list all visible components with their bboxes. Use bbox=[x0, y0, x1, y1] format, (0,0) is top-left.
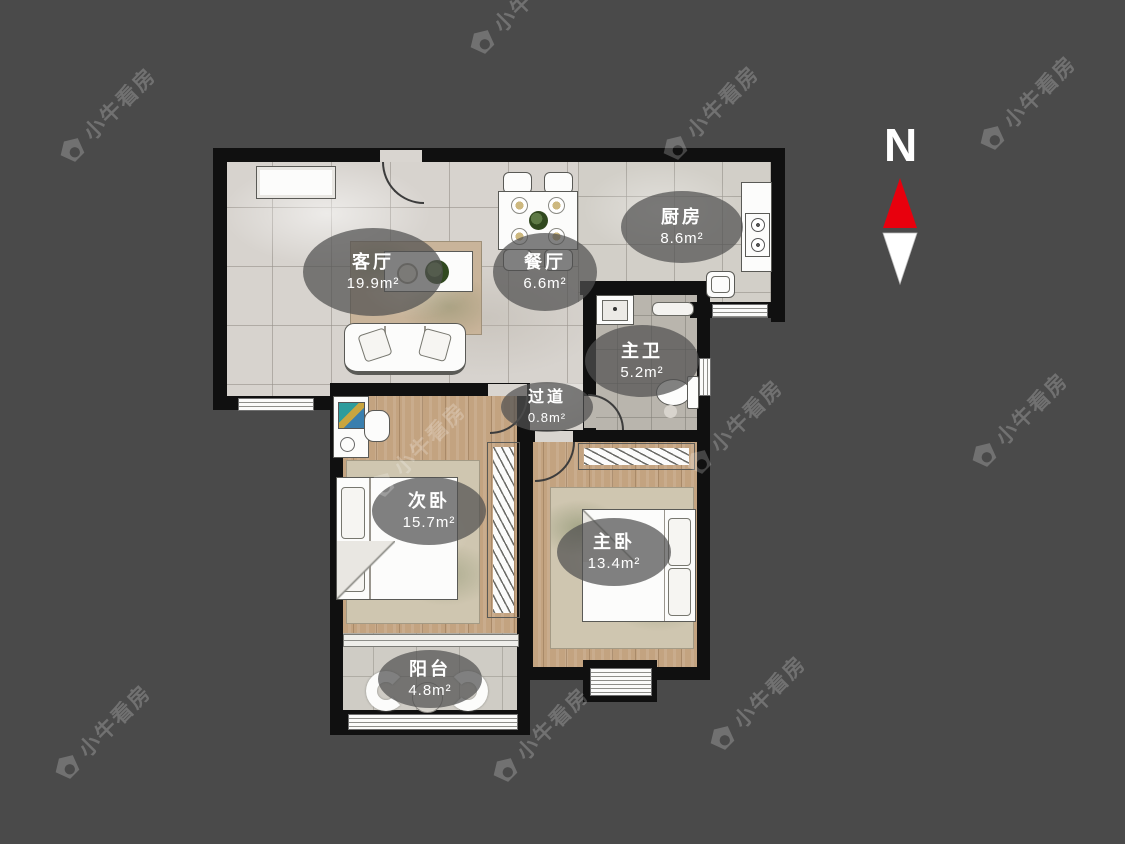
bathroom-window bbox=[699, 358, 711, 396]
label-hallway: 过道 0.8m² bbox=[501, 382, 593, 432]
living-window bbox=[238, 398, 314, 411]
entrance-opening bbox=[380, 150, 422, 162]
bedroom1-door-opening bbox=[535, 431, 573, 442]
bathroom-vanity bbox=[596, 295, 634, 325]
room-area: 0.8m² bbox=[528, 409, 566, 427]
room-area: 4.8m² bbox=[408, 681, 451, 701]
stove bbox=[745, 213, 770, 257]
wall-top bbox=[213, 148, 785, 162]
label-bathroom: 主卫 5.2m² bbox=[585, 325, 699, 397]
bull-logo-icon bbox=[704, 720, 741, 757]
room-name: 过道 bbox=[528, 387, 566, 409]
room-area: 6.6m² bbox=[523, 274, 566, 294]
room-area: 15.7m² bbox=[403, 513, 456, 533]
watermark-text: 小牛看房 bbox=[486, 0, 572, 38]
room-name: 阳台 bbox=[409, 657, 451, 681]
vanity-drain bbox=[613, 307, 617, 311]
sofa-pillow bbox=[418, 328, 452, 362]
watermark: 小牛看房 bbox=[973, 48, 1083, 158]
watermark: 小牛看房 bbox=[53, 60, 163, 170]
watermark-text: 小牛看房 bbox=[703, 372, 789, 458]
label-bedroom2: 次卧 15.7m² bbox=[372, 477, 486, 545]
watermark-text: 小牛看房 bbox=[996, 48, 1082, 134]
label-bedroom1: 主卧 13.4m² bbox=[557, 518, 671, 586]
balcony-window bbox=[348, 714, 518, 730]
bed-pillow bbox=[341, 487, 365, 539]
desk-lamp bbox=[340, 437, 355, 452]
watermark-text: 小牛看房 bbox=[679, 58, 765, 144]
shower-fixture bbox=[652, 302, 694, 316]
room-area: 5.2m² bbox=[620, 363, 663, 383]
room-name: 餐厅 bbox=[524, 250, 566, 274]
floor-drain bbox=[664, 405, 677, 418]
room-name: 厨房 bbox=[661, 205, 703, 229]
bed-pillow bbox=[668, 518, 691, 566]
compass-arrow-icon bbox=[882, 176, 918, 286]
sink-basin bbox=[711, 276, 730, 293]
desk-chair bbox=[364, 410, 390, 442]
room-name: 主卫 bbox=[621, 339, 663, 363]
watermark-text: 小牛看房 bbox=[988, 365, 1074, 451]
label-balcony: 阳台 4.8m² bbox=[378, 650, 482, 708]
watermark: 小牛看房 bbox=[48, 677, 158, 787]
room-area: 19.9m² bbox=[347, 274, 400, 294]
floor-plan-page: { "page": { "background_color": "#4a4a4a… bbox=[0, 0, 1125, 844]
wall-bathroom-top bbox=[580, 281, 710, 295]
bed-pillow bbox=[668, 568, 691, 616]
bull-logo-icon bbox=[54, 132, 91, 169]
kitchen-sink bbox=[706, 271, 735, 298]
wall-kitchen-right bbox=[771, 148, 785, 322]
north-label: N bbox=[884, 118, 917, 172]
bull-logo-icon bbox=[464, 24, 501, 61]
blanket-fold bbox=[337, 541, 395, 599]
room-name: 次卧 bbox=[408, 489, 450, 513]
bedroom1-wardrobe bbox=[578, 443, 695, 470]
balcony-sliding-door bbox=[343, 634, 519, 647]
burner bbox=[751, 238, 765, 252]
table-plant bbox=[529, 211, 548, 230]
room-name: 主卧 bbox=[593, 530, 635, 554]
room-area: 13.4m² bbox=[588, 554, 641, 574]
place-setting bbox=[511, 197, 528, 214]
burner bbox=[751, 218, 765, 232]
bull-logo-icon bbox=[974, 120, 1011, 157]
watermark: 小牛看房 bbox=[965, 365, 1075, 475]
watermark-text: 小牛看房 bbox=[71, 677, 157, 763]
wall-left bbox=[213, 148, 227, 410]
room-name: 客厅 bbox=[352, 250, 394, 274]
watermark-text: 小牛看房 bbox=[726, 648, 812, 734]
watermark: 小牛看房 bbox=[463, 0, 573, 62]
watermark: 小牛看房 bbox=[703, 648, 813, 758]
watermark-text: 小牛看房 bbox=[76, 60, 162, 146]
bull-logo-icon bbox=[49, 749, 86, 786]
kitchen-window bbox=[712, 304, 768, 318]
label-living-room: 客厅 19.9m² bbox=[303, 228, 443, 316]
sofa-pillow bbox=[357, 327, 392, 362]
label-kitchen: 厨房 8.6m² bbox=[621, 191, 743, 263]
computer-monitor bbox=[338, 402, 365, 429]
bull-logo-icon bbox=[487, 752, 524, 789]
place-setting bbox=[548, 197, 565, 214]
wall-bedroom1-right bbox=[697, 430, 710, 680]
sofa bbox=[344, 323, 466, 375]
bedroom2-wardrobe bbox=[487, 442, 520, 618]
bay-window bbox=[590, 668, 652, 696]
living-cabinet bbox=[256, 166, 336, 199]
bull-logo-icon bbox=[966, 437, 1003, 474]
label-dining-room: 餐厅 6.6m² bbox=[493, 233, 597, 311]
room-area: 8.6m² bbox=[660, 229, 703, 249]
